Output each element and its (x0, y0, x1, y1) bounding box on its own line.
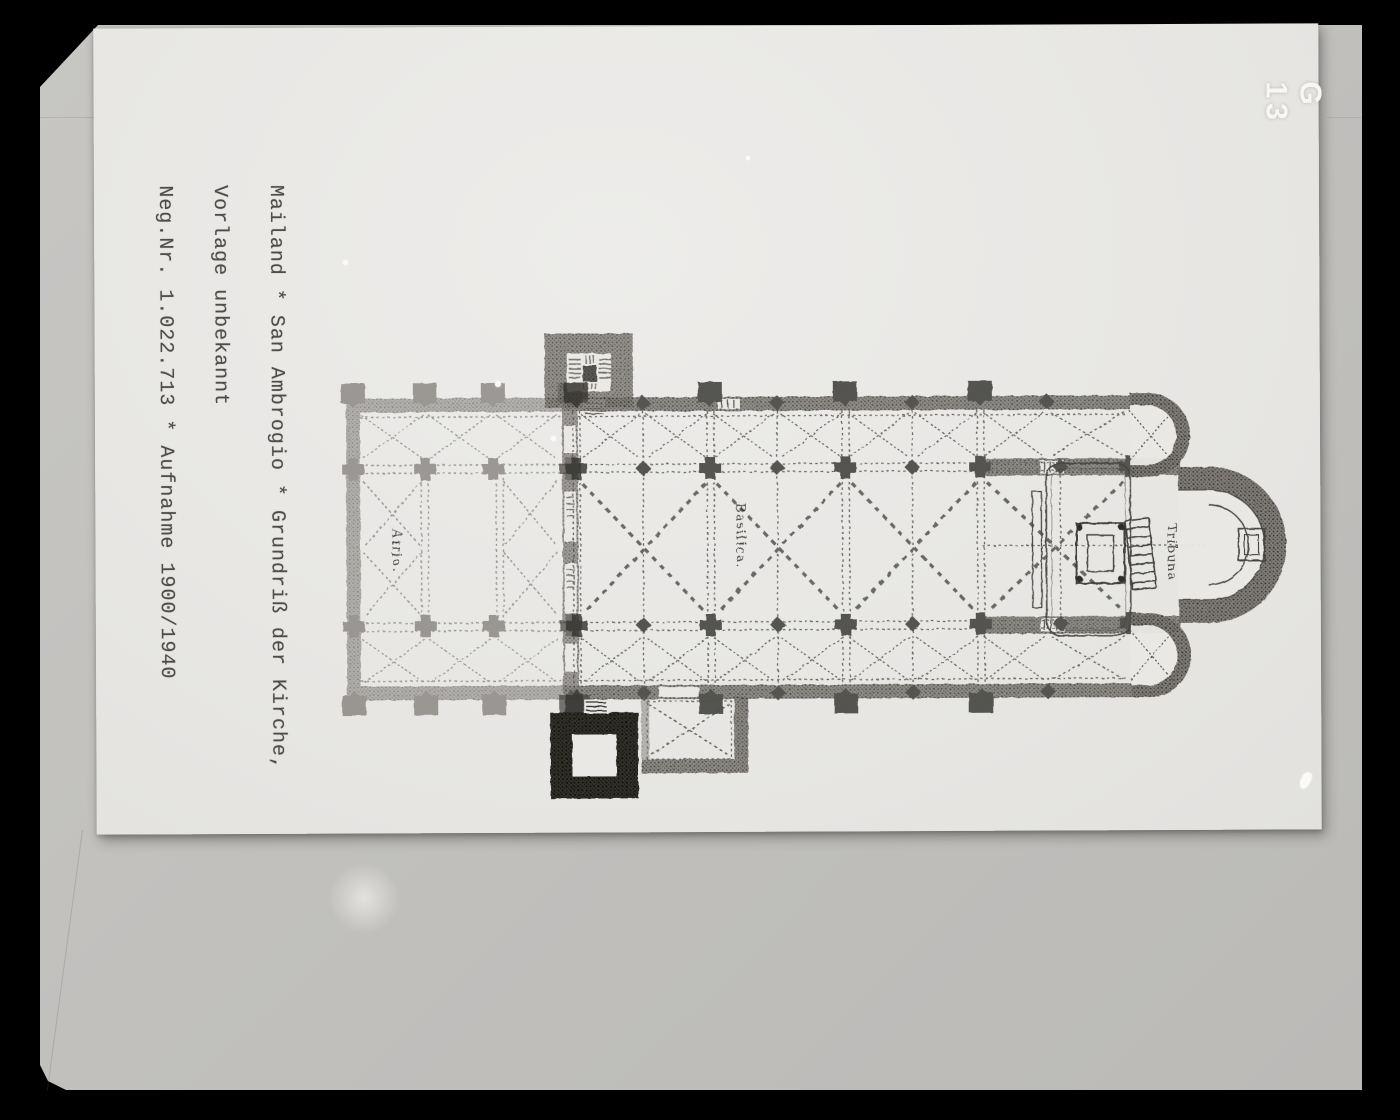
floor-plan-engraving: Atrio. Basilica. Tribuna (340, 322, 1292, 811)
choir-screen (1032, 492, 1042, 608)
catalog-card: Mailand * San Ambrogio * Grundriß der Ki… (93, 23, 1322, 834)
atrium-section (341, 383, 579, 716)
nave-section (562, 380, 1205, 715)
caption-line-2: Vorlage unbekannt (210, 185, 231, 770)
label-basilica: Basilica. (732, 503, 748, 569)
shelf-mark: G 13 (1258, 81, 1326, 125)
mount-scratch-line-right (1322, 117, 1362, 118)
label-atrio: Atrio. (388, 528, 404, 572)
plan-drawing: Atrio. Basilica. Tribuna (341, 330, 1288, 799)
label-tribuna: Tribuna (1163, 523, 1179, 581)
apse-section (1129, 392, 1287, 697)
dust-speck (343, 260, 348, 265)
caption-block: Mailand * San Ambrogio * Grundriß der Ki… (117, 185, 323, 771)
archive-photo-frame: { "archive_photo": { "shelf_mark": "G 13… (0, 0, 1400, 1120)
south-chapel (641, 697, 748, 773)
mount-scratch-line-left (40, 117, 96, 118)
dust-speck (746, 156, 750, 160)
altar-steps (1125, 518, 1156, 590)
dust-speck (551, 436, 556, 441)
dust-speck (495, 381, 501, 387)
caption-line-3: Neg.Nr. 1.022.713 * Aufnahme 1900/1940 (154, 185, 175, 770)
caption-line-1: Mailand * San Ambrogio * Grundriß der Ki… (265, 185, 286, 770)
mount-light-blob (328, 862, 400, 934)
facade-section (558, 383, 583, 715)
